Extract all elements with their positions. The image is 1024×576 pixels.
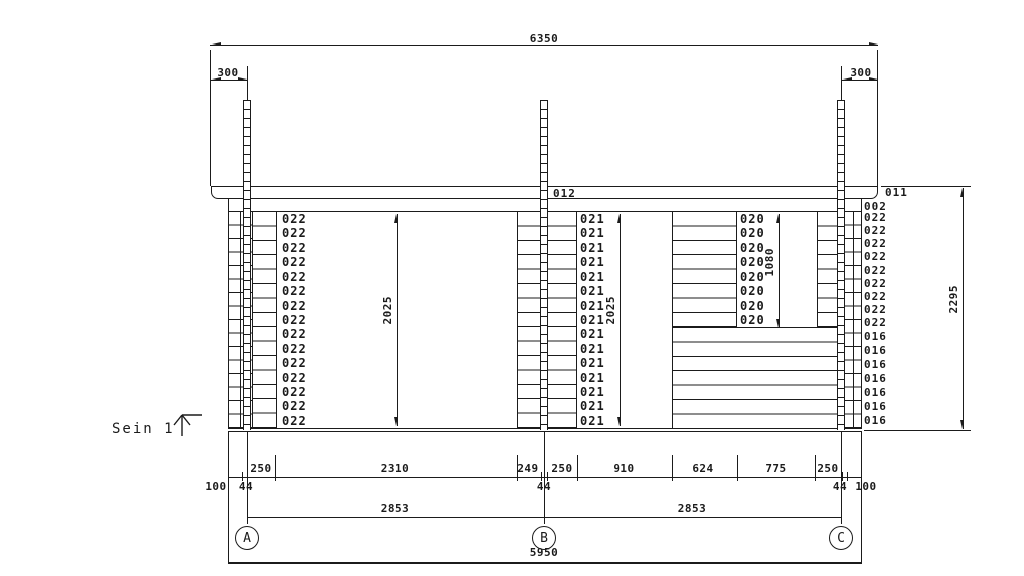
dim-arrow (960, 420, 964, 431)
dim-span-ab: 2853 (381, 502, 410, 515)
dim-line-segments (228, 477, 862, 478)
part-label: 021 (580, 285, 605, 297)
window-column-labels: 020 020 020 020 020 020 020 020 (740, 213, 765, 326)
part-label: 022 (282, 271, 307, 283)
dim-arrow (617, 212, 621, 223)
dim-tick (577, 472, 578, 481)
part-label: 022 (282, 242, 307, 254)
part-label: 016 (864, 416, 887, 426)
part-label: 022 (282, 227, 307, 239)
part-label: 021 (580, 271, 605, 283)
part-label: 016 (864, 388, 887, 398)
part-label: 022 (282, 357, 307, 369)
dim-wall-height: 2295 (947, 285, 960, 314)
dim-tick (737, 472, 738, 481)
pre-post-b-log-column (517, 212, 541, 428)
part-label: 020 (740, 213, 765, 225)
dim-tick (672, 472, 673, 481)
part-label: 016 (864, 360, 887, 370)
dim-arrow (394, 212, 398, 223)
dim-span-bc: 2853 (678, 502, 707, 515)
extension-line (841, 66, 842, 100)
dim-segment: 250 (551, 462, 572, 475)
part-label: 021 (580, 300, 605, 312)
dim-line-opening-height (620, 214, 621, 426)
right-corner-inner-line (853, 212, 854, 428)
extension-line (210, 50, 211, 186)
grid-line-b (544, 432, 545, 524)
grid-letter: A (243, 531, 251, 546)
right-lower-labels: 016 016 016 016 016 016 016 (864, 332, 887, 426)
part-label: 021 (580, 357, 605, 369)
part-label: 022 (864, 305, 887, 315)
dim-line-wall-height (963, 188, 964, 429)
extension-line (881, 186, 971, 187)
post-a (243, 100, 251, 430)
dim-segment: 250 (817, 462, 838, 475)
part-label: 022 (282, 343, 307, 355)
left-corner-inner-line (240, 212, 241, 428)
part-label: 021 (580, 328, 605, 340)
left-log-column (252, 212, 277, 428)
dim-tick (247, 512, 248, 521)
part-label: 021 (580, 242, 605, 254)
dim-opening-height: 2025 (604, 296, 617, 325)
dim-tick (841, 512, 842, 521)
part-label: 020 (740, 242, 765, 254)
part-label: 020 (740, 314, 765, 326)
part-label: 022 (282, 213, 307, 225)
part-label: 022 (282, 400, 307, 412)
grid-bubble-c: C (829, 526, 853, 550)
dim-line-door-height (397, 214, 398, 426)
dim-window-height: 1080 (763, 248, 776, 277)
dim-tick (847, 472, 848, 481)
part-label: 022 (282, 300, 307, 312)
dim-segment: 624 (692, 462, 713, 475)
dim-bottom-total: 5950 (530, 546, 559, 559)
middle-column-labels: 021 021 021 021 021 021 021 021 021 021 … (580, 213, 605, 427)
dim-tick (815, 472, 816, 481)
dim-segment: 910 (613, 462, 634, 475)
dim-arrow (617, 417, 621, 428)
dim-segment: 775 (765, 462, 786, 475)
dim-segment: 249 (517, 462, 538, 475)
part-label: 016 (864, 332, 887, 342)
part-label: 020 (740, 271, 765, 283)
extension-line (864, 430, 971, 431)
part-label: 020 (740, 227, 765, 239)
part-label: 022 (282, 372, 307, 384)
wall-elevation-drawing: 6350 300 300 012 011 002 022 022 022 022… (0, 0, 1024, 576)
dim-line-top-total (210, 45, 878, 46)
part-label: 022 (282, 328, 307, 340)
wall-direction-arrow-icon (168, 408, 204, 438)
dim-tick (544, 512, 545, 521)
window-right-log-column (817, 212, 838, 327)
dim-edge-right: 100 (855, 480, 876, 493)
dim-overhang-left: 300 (217, 66, 238, 79)
part-label: 022 (282, 285, 307, 297)
part-label-roof-beam-end: 011 (885, 186, 908, 199)
part-label: 021 (580, 227, 605, 239)
part-label: 021 (580, 372, 605, 384)
part-label: 016 (864, 374, 887, 384)
part-label-roof-beam: 012 (553, 187, 576, 200)
left-column-labels: 022 022 022 022 022 022 022 022 022 022 … (282, 213, 307, 427)
part-label: 020 (740, 285, 765, 297)
dim-top-total: 6350 (530, 32, 559, 45)
part-label: 022 (864, 292, 887, 302)
part-label: 021 (580, 400, 605, 412)
part-label: 022 (864, 266, 887, 276)
part-label: 022 (864, 226, 887, 236)
dim-arrow (776, 319, 780, 330)
part-label: 022 (282, 386, 307, 398)
part-label: 020 (740, 300, 765, 312)
dim-line-window-height (779, 214, 780, 328)
part-label: 021 (580, 415, 605, 427)
dim-arrow (776, 212, 780, 223)
dim-overhang-right: 300 (850, 66, 871, 79)
part-label-top-log: 002 (864, 200, 887, 213)
part-label: 022 (282, 415, 307, 427)
dim-arrow (394, 417, 398, 428)
part-label: 022 (282, 256, 307, 268)
dim-edge-left: 100 (205, 480, 226, 493)
post-b-right-log-column (548, 212, 577, 428)
part-label: 016 (864, 346, 887, 356)
below-window-logs (672, 327, 838, 428)
dim-line-bottom-total (228, 562, 862, 564)
part-label: 021 (580, 256, 605, 268)
dim-segment: 250 (250, 462, 271, 475)
part-label: 021 (580, 314, 605, 326)
dim-segment: 2310 (381, 462, 410, 475)
part-label: 021 (580, 386, 605, 398)
post-c (837, 100, 845, 430)
post-b (540, 100, 548, 430)
part-label: 022 (864, 252, 887, 262)
grid-letter: C (837, 531, 845, 546)
part-label: 020 (740, 256, 765, 268)
part-label: 022 (864, 318, 887, 328)
grid-letter: B (540, 531, 548, 546)
part-label: 016 (864, 402, 887, 412)
part-label: 021 (580, 213, 605, 225)
dim-arrow (210, 42, 221, 46)
right-upper-labels: 022 022 022 022 022 022 022 022 022 (864, 213, 887, 328)
part-label: 022 (864, 213, 887, 223)
dim-arrow (960, 186, 964, 197)
dim-arrow (869, 42, 880, 46)
wall-name: Sein 1 (112, 421, 175, 437)
part-label: 022 (864, 239, 887, 249)
window-left-log-column (672, 212, 737, 327)
part-label: 022 (864, 279, 887, 289)
extension-line (861, 432, 862, 564)
extension-line (877, 50, 878, 186)
extension-line (247, 66, 248, 100)
part-label: 022 (282, 314, 307, 326)
dim-post-a: 44 (239, 480, 253, 493)
dim-post-b: 44 (537, 480, 551, 493)
dim-tick (275, 472, 276, 481)
dim-door-height: 2025 (381, 296, 394, 325)
grid-bubble-a: A (235, 526, 259, 550)
dim-post-c: 44 (833, 480, 847, 493)
part-label: 021 (580, 343, 605, 355)
extension-line (228, 432, 229, 564)
